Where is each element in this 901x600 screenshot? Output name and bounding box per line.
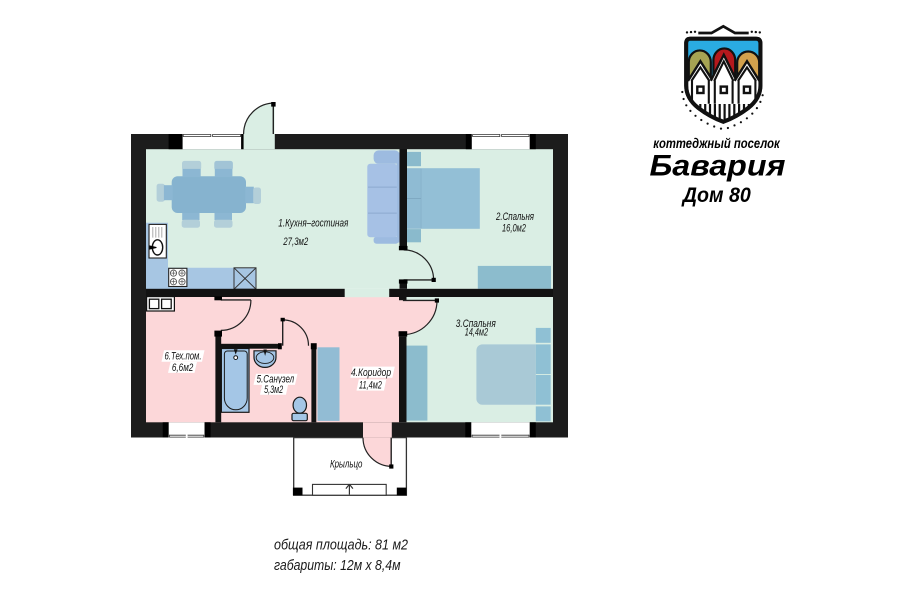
svg-text:Дом 80: Дом 80	[681, 184, 751, 207]
svg-text:1.Кухня–гостиная: 1.Кухня–гостиная	[278, 218, 348, 230]
svg-text:5,3м2: 5,3м2	[264, 384, 283, 396]
svg-text:общая площадь: 81 м2: общая площадь: 81 м2	[274, 538, 408, 554]
svg-text:14,4м2: 14,4м2	[465, 326, 488, 338]
svg-text:16,0м2: 16,0м2	[502, 222, 526, 234]
svg-text:Бавария: Бавария	[650, 149, 786, 182]
svg-text:Крыльцо: Крыльцо	[330, 459, 362, 471]
svg-text:габариты: 12м x 8,4м: габариты: 12м x 8,4м	[274, 558, 401, 574]
svg-text:11,4м2: 11,4м2	[359, 379, 382, 391]
svg-text:27,3м2: 27,3м2	[283, 236, 309, 248]
svg-text:4.Коридор: 4.Коридор	[351, 367, 391, 379]
svg-text:2.Спальня: 2.Спальня	[495, 211, 534, 223]
svg-text:6,6м2: 6,6м2	[172, 362, 194, 374]
svg-text:6.Тех.пом.: 6.Тех.пом.	[165, 351, 202, 363]
